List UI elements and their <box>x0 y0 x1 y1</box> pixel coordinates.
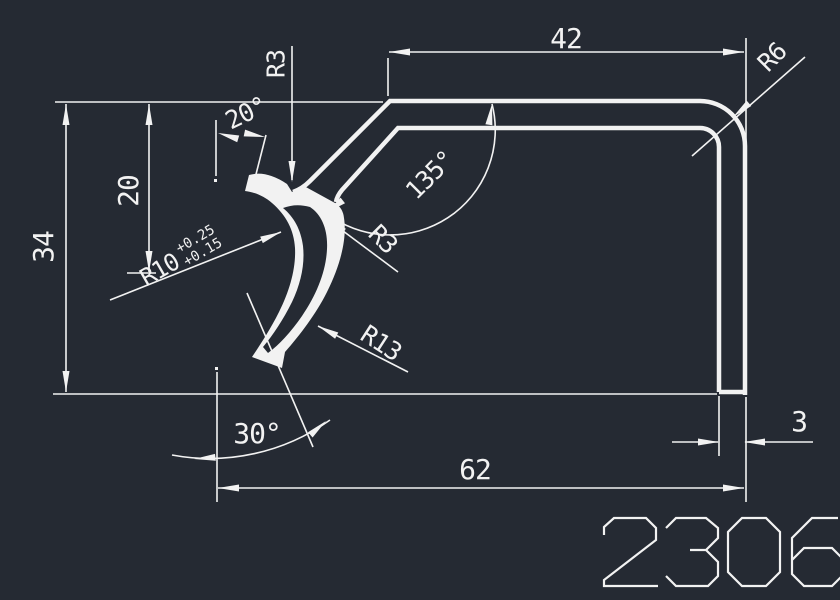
cad-canvas: 34 20 20° R3 42 R6 135° R3 R10+0.25+0.15… <box>0 0 840 600</box>
part-number-digit <box>728 518 780 586</box>
dim-34 <box>63 104 70 392</box>
part-number-digit <box>666 518 718 586</box>
leader-r6 <box>692 57 805 156</box>
drawing-geometry <box>0 0 840 600</box>
dim-label-30deg: 30° <box>233 420 281 448</box>
part-number-glyphs <box>604 518 840 586</box>
dim-label-20: 20 <box>115 175 143 207</box>
dim-label-34: 34 <box>30 231 58 263</box>
profile-hook-body <box>245 174 345 368</box>
profile-outer-wall <box>293 101 745 395</box>
dim-angle-135 <box>326 104 495 235</box>
dim-label-62: 62 <box>459 456 491 484</box>
part-number-digit <box>604 518 658 586</box>
dim-label-r3-top: R3 <box>264 50 289 78</box>
dim-label-3: 3 <box>791 408 807 436</box>
part-number-digit <box>792 518 840 586</box>
dim-label-42: 42 <box>550 25 582 53</box>
dim-42 <box>388 38 746 152</box>
